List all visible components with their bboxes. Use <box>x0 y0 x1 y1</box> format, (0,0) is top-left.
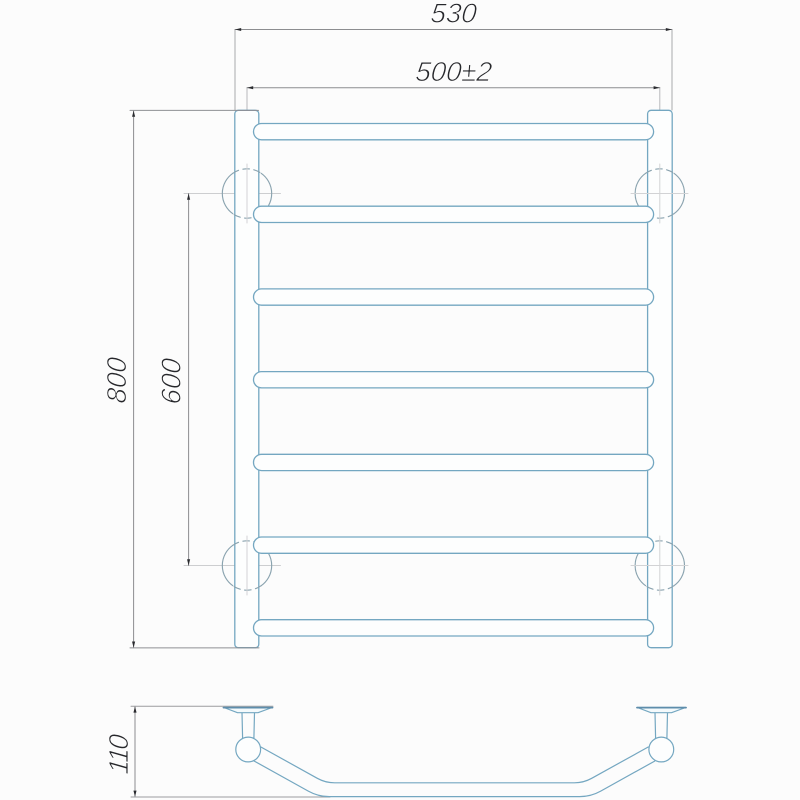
svg-text:600: 600 <box>156 356 187 405</box>
svg-text:800: 800 <box>101 355 132 404</box>
svg-text:110: 110 <box>103 732 134 775</box>
svg-text:500±2: 500±2 <box>414 56 493 87</box>
svg-text:530: 530 <box>430 0 479 28</box>
